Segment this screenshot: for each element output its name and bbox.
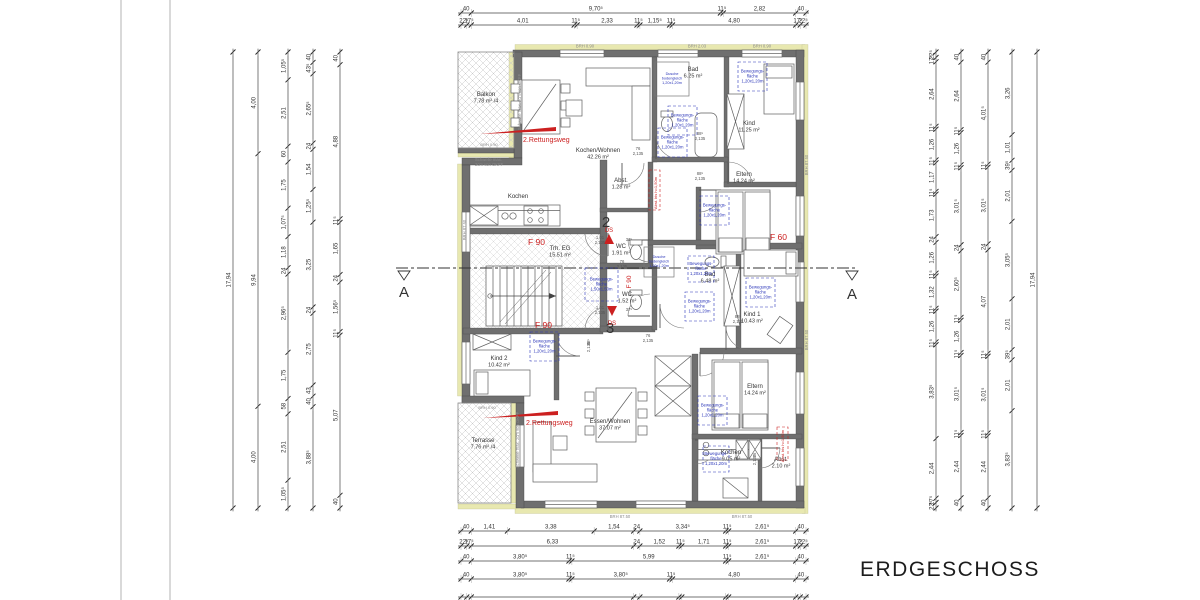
door-dim: 2,135	[643, 338, 654, 343]
door-dim: 2,135	[752, 454, 757, 465]
ds-marker-down-icon	[607, 306, 617, 316]
dim-right-1-value: 2,44	[955, 460, 961, 472]
dim-top-1-value: 22⁵	[799, 18, 809, 25]
dim-left-2-value: 1,07⁵	[281, 215, 288, 230]
dim-right-0-value: 1,26	[930, 251, 936, 263]
abst-red-note: Abst. bis h=1,50m	[653, 176, 658, 209]
dim-right-3-value: 2,01	[1006, 379, 1012, 391]
door-dim: 2,135	[595, 310, 606, 315]
dim-right-1-value: 40	[955, 53, 961, 60]
dim-right-1-value: 3,01⁵	[954, 199, 961, 214]
brh-label: BRH 87.50	[732, 514, 753, 519]
rescue-route-label: 2.Rettungsweg	[523, 137, 570, 144]
dim-left-3-value: 3,88⁵	[306, 450, 313, 465]
room-label-kind-og2: Kind	[743, 121, 755, 127]
dim-bottom-0-value: 40	[798, 525, 805, 531]
door-dim: 2,135	[595, 240, 606, 245]
dim-left-3-value: 24	[307, 142, 313, 149]
dim-bottom-0-value: 2,61⁵	[755, 524, 770, 531]
dim-left-2-value: 1,18	[282, 246, 288, 258]
brh-label: BRH 2.03	[688, 44, 707, 49]
movement-area-label: 1,20x1,20m	[702, 413, 724, 418]
dim-bottom-3-value: 3,80⁵	[614, 572, 629, 579]
dim-left-4-value: 5,07	[334, 409, 340, 421]
shower-label: Dusche	[666, 72, 679, 76]
dim-right-0-value: 2,64	[930, 88, 936, 100]
dim-right-3-value: 2,01	[1006, 318, 1012, 330]
dim-right-0-value: 24	[930, 235, 936, 242]
room-area-wc-2: 1.91 m²	[612, 251, 631, 257]
section-marker-left-icon	[398, 271, 410, 280]
dim-left-2-value: 60	[282, 150, 288, 157]
dim-left-2-value: 1,05⁵	[281, 58, 288, 73]
dim-left-0-value: 17,94	[227, 272, 233, 288]
brh-label: BRH 0.90	[480, 142, 498, 147]
dim-bottom-0-value: 3,38	[545, 525, 557, 531]
dim-left-3-value: 40	[307, 53, 313, 60]
room-area-eltern-2: 14.24 m²	[733, 179, 755, 185]
dim-top-1-value: 4,01	[517, 19, 529, 25]
shower-label: bodengleich	[649, 260, 669, 264]
room-area-kind-og2: 11.25 m²	[738, 128, 759, 134]
dim-bottom-0-value: 3,34⁵	[676, 524, 691, 531]
dim-top-0-value: 2,82	[754, 7, 766, 13]
dim-right-1-value: 1,26	[955, 142, 961, 154]
dim-right-2-value: 3,01⁵	[981, 198, 988, 213]
dim-top-1-value: 2,33	[601, 19, 613, 25]
dim-left-2-value: 1,05⁵	[281, 486, 288, 501]
dim-left-3-value: 1,54	[307, 163, 313, 175]
dim-right-0-value: 1,26	[930, 320, 936, 332]
dim-right-2-value: 24	[982, 243, 988, 250]
room-area-terrasse: 7.76 m² /4	[471, 445, 496, 451]
threshold-note: 2cm von OKFF	[475, 162, 504, 167]
movement-area-label: 1,20x1,20m	[689, 309, 711, 314]
dim-right-2-value: 40	[982, 53, 988, 60]
movement-area-label: 1,20x1,20m	[534, 349, 556, 354]
dim-left-3-value: 43⁵	[306, 63, 313, 73]
dim-left-3-value: 43	[307, 387, 313, 394]
dim-bottom-2-value: 40	[798, 555, 805, 561]
dim-left-2-value: 2,51	[282, 441, 288, 453]
dim-right-2-value: 3,01⁵	[981, 387, 988, 402]
door-dim: 2,135	[733, 319, 744, 324]
dim-right-1-value: 24	[955, 244, 961, 251]
room-area-bad-2: 6.25 m²	[684, 74, 703, 80]
room-label-abst-2: Abst.	[614, 178, 628, 184]
movement-area-label: 1,20x1,20m	[662, 145, 684, 150]
dim-left-2-value: 24	[282, 267, 288, 274]
dim-right-3-value: 3,26	[1006, 87, 1012, 99]
dim-right-3-value: 2,01	[1006, 189, 1012, 201]
dim-bottom-0-value: 1,41	[484, 525, 496, 531]
dim-bottom-1-value: 1,52	[654, 540, 666, 546]
dim-bottom-3-value: 40	[798, 573, 805, 579]
door-dim: 2,135	[586, 341, 591, 352]
dim-right-2-value: 4,07	[982, 295, 988, 307]
dim-left-4-value: 40	[334, 498, 340, 505]
dim-right-1-value: 2,64	[955, 89, 961, 101]
dim-bottom-1-value: 1,71	[698, 540, 710, 546]
section-marker-right-icon	[846, 271, 858, 280]
brh-label: BRH 87.50	[610, 514, 631, 519]
wall-dim: 37⁵	[626, 237, 633, 242]
dim-left-2-value: 1,75	[282, 369, 288, 381]
dim-left-1-value: 4,00	[252, 96, 258, 108]
dim-right-4-value: 17,94	[1031, 272, 1037, 288]
dim-left-1-value: 9,94	[252, 274, 258, 286]
room-area-kind-1: 10.43 m²	[741, 319, 763, 325]
dim-right-1-value: 3,01⁵	[954, 386, 961, 401]
dim-bottom-3-value: 3,80⁵	[513, 572, 528, 579]
dim-right-0-value: 22⁵	[929, 500, 936, 510]
dim-right-3-value: 3,83⁵	[1005, 452, 1012, 467]
dim-right-2-value: 2,44	[982, 460, 988, 472]
door-dim: 2,135	[633, 151, 644, 156]
movement-area-label: 1,20x1,20m	[750, 295, 772, 300]
room-area-treppenhaus: 15.51 m²	[549, 253, 571, 259]
room-label-kochen-2: Kochen	[508, 194, 528, 200]
dim-left-3-value: 24	[307, 306, 313, 313]
movement-area-label: 1,20x1,20m	[672, 123, 694, 128]
dim-top-1-value: 4,80	[728, 19, 740, 25]
room-label-balkon: Balkon	[477, 92, 495, 98]
dim-left-2-value: 58	[282, 402, 288, 409]
brh-label: BRH 87.50	[804, 154, 809, 175]
staircase	[486, 266, 562, 326]
room-label-eltern-3: Eltern	[747, 384, 763, 390]
room-area-wc-3: 1.52 m²	[618, 299, 637, 305]
room-area-balkon: 7.78 m² /4	[474, 99, 499, 105]
room-label-kind-1: Kind 1	[743, 312, 761, 318]
room-area-bad-3: 6.48 m²	[701, 279, 720, 285]
movement-area-150-label: 1,50x1,50m	[591, 287, 613, 292]
room-label-treppenhaus: Trh. EG	[550, 246, 571, 252]
dim-right-0-value: 1,17	[930, 171, 936, 183]
dim-bottom-0-value: 40	[463, 525, 470, 531]
dim-left-1-value: 4,00	[252, 451, 258, 463]
drawing-sheet: { "title": "ERDGESCHOSS", "section": { "…	[0, 0, 1200, 600]
dim-left-3-value: 2,65⁵	[306, 101, 313, 116]
dim-top-1-value: 1,15⁵	[648, 18, 663, 25]
movement-area-label: 1,20x1,20m	[704, 213, 726, 218]
room-label-kind-2: Kind 2	[490, 356, 508, 362]
dim-left-4-value: 4,88	[334, 135, 340, 147]
dim-right-2-value: 4,01⁵	[981, 106, 988, 121]
dim-right-3-value: 1,01	[1006, 141, 1012, 153]
ds-marker-label: DS	[608, 321, 616, 327]
dim-top-0-value: 9,70⁵	[589, 6, 604, 13]
shower-label: 1,20x1,20m	[649, 264, 669, 268]
shower-label: 1,20x1,20m	[662, 81, 682, 85]
fire-rating-f90: F 90	[528, 237, 545, 247]
door-dim: 2,135	[695, 136, 706, 141]
dim-right-1-value: 2,60⁵	[954, 277, 961, 292]
movement-area-label: 1,20x1,20m	[705, 461, 727, 466]
room-label-eltern-2: Eltern	[736, 172, 752, 178]
dim-right-0-value: 2,44	[930, 462, 936, 474]
room-area-eltern-3: 14.24 m²	[744, 391, 766, 397]
room-area-essen-wohnen: 37.07 m²	[599, 426, 621, 432]
door-dim: 2,135	[617, 264, 628, 269]
threshold-note: Schwelle max. 2cm von OKFF	[515, 411, 520, 468]
section-letter-right: A	[847, 286, 857, 303]
dim-right-1-value: 1,26	[955, 330, 961, 342]
section-letter-left: A	[399, 284, 409, 301]
room-label-kochen-wohnen: Kochen/Wohnen	[576, 148, 620, 154]
dim-bottom-1-value: 6,33	[547, 540, 559, 546]
dim-left-3-value: 2,75	[307, 343, 313, 355]
ds-marker-label: DS	[605, 228, 613, 234]
dim-left-3-value: 1,25⁵	[306, 198, 313, 213]
dim-right-1-value: 40	[955, 499, 961, 506]
shower-label: Dusche	[653, 255, 666, 259]
dim-right-0-value: 1,73	[930, 209, 936, 221]
movement-area-label: 1,20x1,20m	[742, 79, 764, 84]
brh-label: BRH 0.90	[576, 44, 595, 49]
room-label-essen-wohnen: Essen/Wohnen	[590, 419, 631, 425]
fire-rating-f90: F 90	[535, 320, 552, 330]
shower-label: bodengleich	[662, 77, 682, 81]
fire-rating-f60: F 60	[770, 232, 787, 242]
dim-bottom-2-value: 5,99	[643, 555, 655, 561]
floor-plan-drawing: Balkon7.78 m² /4Kochen/Wohnen42.26 m²Koc…	[0, 0, 1200, 600]
wall-dim: 37⁵	[626, 307, 633, 312]
dim-left-4-value: 40	[334, 54, 340, 61]
room-area-abst-3: 2.10 m²	[772, 464, 791, 470]
dim-top-0-value: 40	[798, 7, 805, 13]
dim-right-0-value: 1,26	[930, 138, 936, 150]
fire-rating-f90-rotated: F 90	[626, 275, 633, 288]
brh-label: BRH 0.90	[753, 44, 772, 49]
room-area-kind-2: 10.42 m²	[488, 363, 510, 369]
room-label-terrasse: Terrasse	[471, 438, 495, 444]
dim-left-3-value: 40	[307, 397, 313, 404]
dim-right-3-value: 39⁵	[1005, 350, 1012, 360]
rescue-route-label: 2.Rettungsweg	[526, 420, 573, 427]
movement-area-label: 1,20x1,20m	[690, 271, 712, 276]
dim-right-3-value: 39⁵	[1005, 160, 1012, 170]
abst-red-note: Abst. bis h=1,50m	[780, 429, 785, 462]
dim-right-2-value: 40	[982, 499, 988, 506]
dim-left-4-value: 1,65	[334, 242, 340, 254]
terrasse-floor	[458, 403, 511, 503]
dim-bottom-2-value: 3,80⁵	[513, 554, 528, 561]
dim-left-3-value: 3,25	[307, 258, 313, 270]
dim-bottom-3-value: 4,80	[728, 573, 740, 579]
dim-left-2-value: 1,75	[282, 179, 288, 191]
dim-bottom-1-value: 22⁵	[799, 539, 809, 546]
dim-right-0-value: 3,83⁵	[929, 384, 936, 399]
dim-right-3-value: 3,05⁵	[1005, 252, 1012, 267]
door-dim: 2,135	[695, 176, 706, 181]
dim-bottom-2-value: 40	[463, 555, 470, 561]
room-area-abst-2: 1.28 m²	[612, 185, 631, 191]
dim-left-4-value: 1,56⁵	[333, 299, 340, 314]
dim-bottom-1-value: 2,61⁵	[755, 539, 770, 546]
room-label-wc-3: WC	[622, 292, 633, 298]
dim-bottom-2-value: 2,61⁵	[755, 554, 770, 561]
dim-bottom-3-value: 40	[463, 573, 470, 579]
dim-right-0-value: 1,32	[930, 286, 936, 298]
room-label-wc-2: WC	[616, 244, 627, 250]
threshold-note: Schwelle max. 2cm von OKFF	[517, 73, 522, 130]
dim-left-2-value: 2,96⁵	[281, 306, 288, 321]
dim-top-0-value: 40	[463, 7, 470, 13]
dim-bottom-0-value: 1,54	[608, 525, 620, 531]
sheet-frame	[121, 0, 170, 600]
room-area-kochen-wohnen: 42.26 m²	[587, 155, 609, 161]
dim-left-2-value: 2,51	[282, 106, 288, 118]
dim-left-4-value: 24	[334, 274, 340, 281]
brh-label: BRH 87.50	[462, 219, 467, 240]
drawing-title: ERDGESCHOSS	[860, 558, 1180, 582]
brh-label: BRH 87.50	[804, 329, 809, 350]
brh-label: BRH 0.90	[478, 405, 496, 410]
